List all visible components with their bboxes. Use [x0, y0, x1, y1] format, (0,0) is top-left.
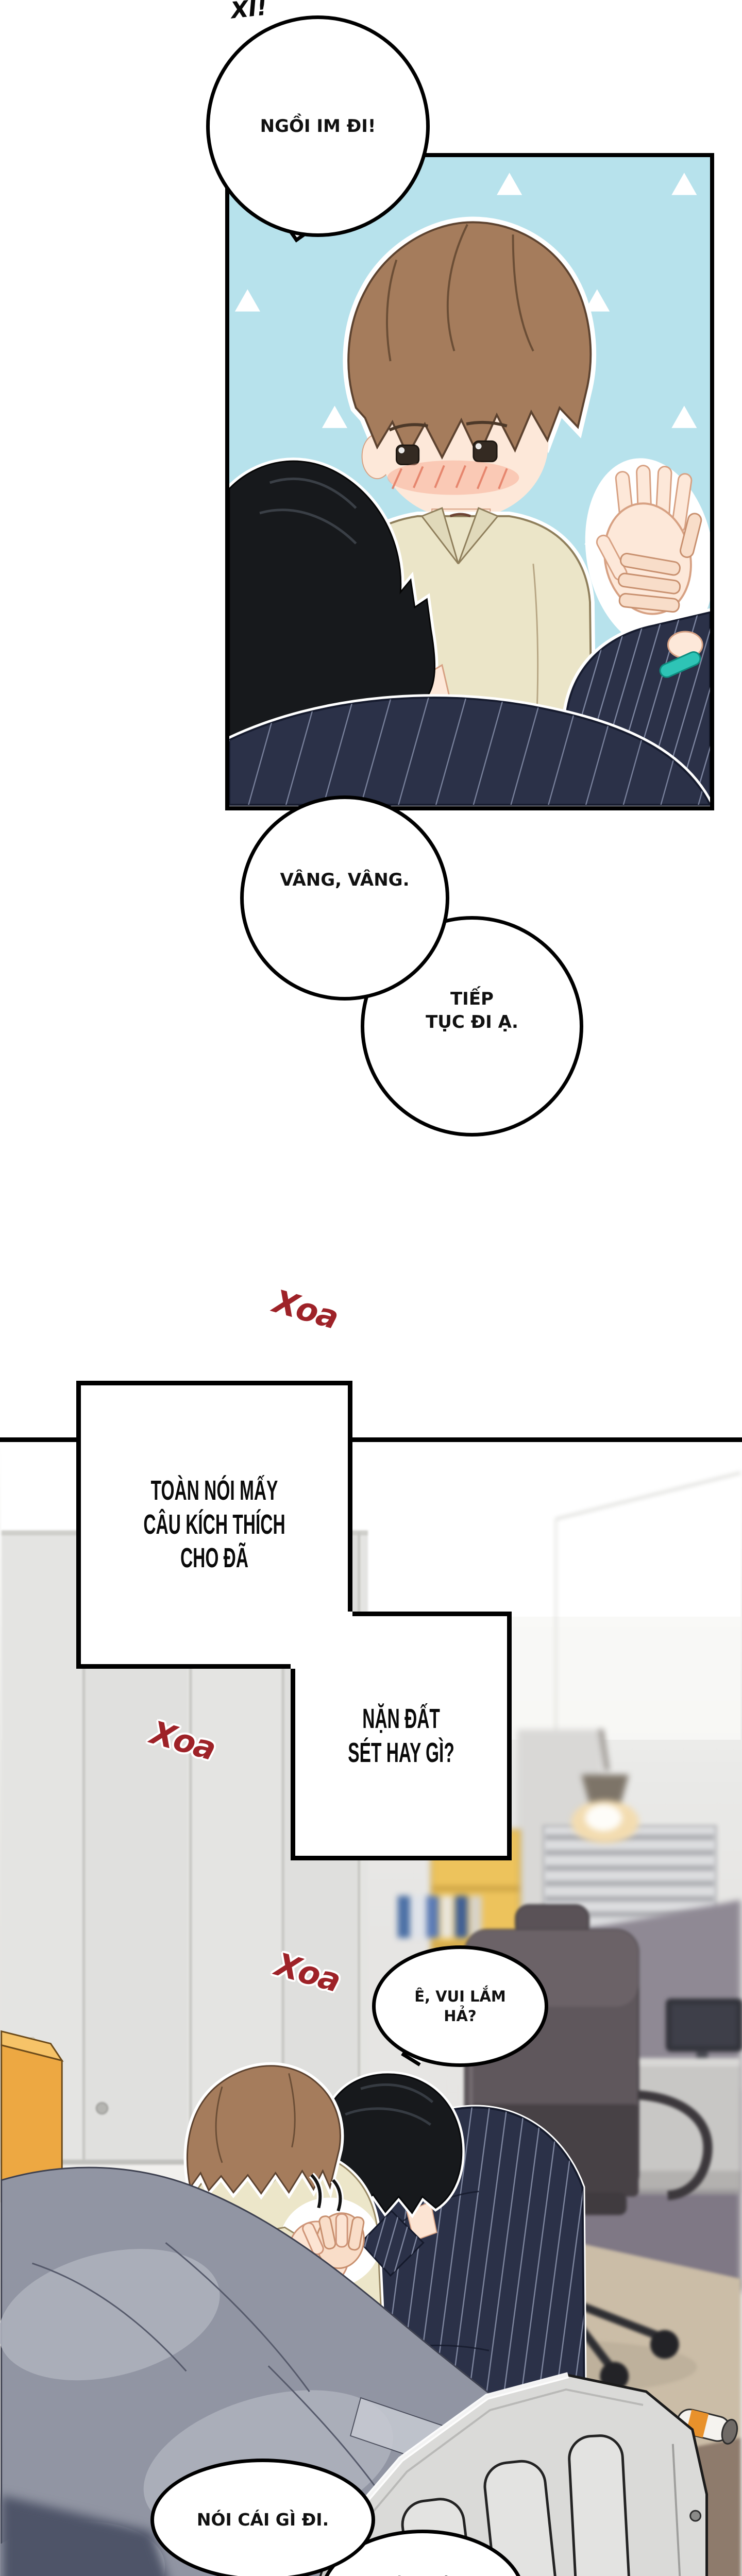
bubble-line: VÂNG, VÂNG.: [280, 869, 409, 892]
narration-line: CÂU KÍCH THÍCH: [143, 1508, 285, 1542]
bubble-text: NGỒI IM ĐI!: [260, 115, 376, 138]
bubble-line: TỤC ĐI Ạ.: [426, 1011, 518, 1034]
bubble-text: TIẾP TỤC ĐI Ạ.: [426, 988, 518, 1065]
narration-text: NẶN ĐẤT SÉT HAY GÌ?: [348, 1702, 454, 1770]
bubble-line: NÓI CÁI GÌ ĐI.: [197, 2509, 329, 2531]
narration-line: TOÀN NÓI MẤY: [143, 1474, 285, 1508]
bubble-line: HẢ?: [414, 2006, 506, 2026]
sfx-top: XI!: [230, 0, 268, 24]
speech-bubble-having-fun: Ê, VUI LẮM HẢ?: [372, 1945, 548, 2067]
sfx-rub-1: Xoa: [269, 1282, 342, 1336]
blush: [387, 461, 519, 495]
narration-line: NẶN ĐẤT: [348, 1702, 454, 1736]
speech-bubble-sit-still: NGỒI IM ĐI!: [206, 15, 430, 237]
panel-blue-closeup: [225, 153, 714, 810]
bubble-text: Ê, VUI LẮM HẢ?: [414, 1987, 506, 2026]
box-join-patch: [291, 1612, 352, 1669]
sfx-text: Xoa: [269, 1282, 342, 1336]
comic-page: XI!: [0, 0, 742, 2576]
bubble-line: NGỒI IM ĐI!: [260, 115, 376, 138]
sfx-top-text: XI!: [230, 0, 268, 24]
bubble-text: NÓI CÁI GÌ ĐI.: [197, 2509, 329, 2531]
narration-line: SÉT HAY GÌ?: [348, 1736, 454, 1770]
bubble-line: Ê, VUI LẮM: [414, 1987, 506, 2006]
speech-bubble-yes-yes: VÂNG, VÂNG.: [240, 795, 449, 1001]
bubble-line: TIẾP: [426, 988, 518, 1011]
panel1-art: [229, 157, 710, 806]
bubble-text: VÂNG, VÂNG.: [280, 869, 409, 928]
speech-bubble-say-something: NÓI CÁI GÌ ĐI.: [150, 2459, 375, 2576]
narration-text: TOÀN NÓI MẤY CÂU KÍCH THÍCH CHO ĐÃ: [143, 1474, 285, 1576]
narration-line: CHO ĐÃ: [143, 1541, 285, 1575]
